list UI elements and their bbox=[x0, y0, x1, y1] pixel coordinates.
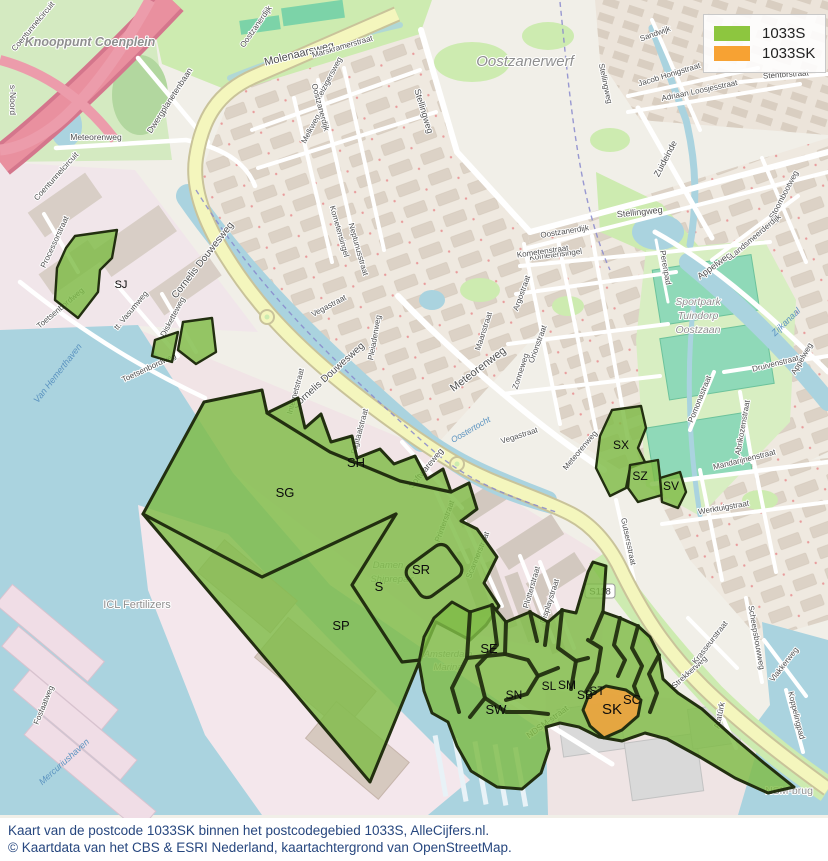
map-label-sp: SP bbox=[332, 618, 349, 633]
legend: 1033S 1033SK bbox=[703, 14, 826, 73]
legend-label-1033s: 1033S bbox=[762, 25, 805, 42]
legend-label-1033sk: 1033SK bbox=[762, 45, 815, 62]
map-label-sw: SW bbox=[486, 702, 508, 717]
map-label-tuindorp: Tuindorp bbox=[678, 310, 719, 322]
map-label-sc: SC bbox=[623, 692, 641, 707]
map-label-sh: SH bbox=[347, 455, 365, 470]
map-label-st: ST bbox=[589, 684, 605, 698]
map-label-s: S bbox=[375, 579, 384, 594]
map-label-sk: SK bbox=[602, 701, 622, 718]
map: S118 MolenaarswegMarskramerstraatReizige… bbox=[0, 0, 828, 818]
map-label-knooppunt-coenplein: Knooppunt Coenplein bbox=[25, 35, 156, 49]
map-label-s-noord: s-Noord bbox=[8, 85, 18, 116]
caption-line-2: © Kaartdata van het CBS & ESRI Nederland… bbox=[8, 839, 828, 856]
map-label-oostzaan: Oostzaan bbox=[676, 324, 721, 336]
map-label-sj: SJ bbox=[115, 279, 128, 291]
map-label-sg: SG bbox=[276, 485, 295, 500]
map-canvas: S118 MolenaarswegMarskramerstraatReizige… bbox=[0, 0, 828, 818]
map-label-sx: SX bbox=[613, 438, 629, 452]
map-label-oostzanerwerf: Oostzanerwerf bbox=[476, 53, 575, 70]
legend-swatch-1033s-icon bbox=[714, 26, 750, 41]
map-label-sl: SL bbox=[542, 679, 557, 693]
legend-item-1033sk: 1033SK bbox=[714, 45, 815, 62]
map-label-sr: SR bbox=[412, 562, 430, 577]
map-label-icl-fertilizers: ICL Fertilizers bbox=[103, 599, 171, 611]
map-label-sm: SM bbox=[558, 678, 576, 692]
caption: Kaart van de postcode 1033SK binnen het … bbox=[0, 818, 828, 861]
map-label-sv: SV bbox=[663, 479, 679, 493]
map-label-meteorenweg: Meteorenweg bbox=[70, 132, 122, 142]
map-label-sn: SN bbox=[506, 688, 523, 702]
map-label-se: SE bbox=[480, 641, 498, 656]
caption-line-1: Kaart van de postcode 1033SK binnen het … bbox=[8, 822, 828, 839]
legend-swatch-1033sk-icon bbox=[714, 46, 750, 61]
legend-item-1033s: 1033S bbox=[714, 25, 815, 42]
map-label-sportpark: Sportpark bbox=[675, 296, 721, 308]
map-background: S118 bbox=[0, 0, 828, 818]
map-label-sz: SZ bbox=[632, 469, 647, 483]
